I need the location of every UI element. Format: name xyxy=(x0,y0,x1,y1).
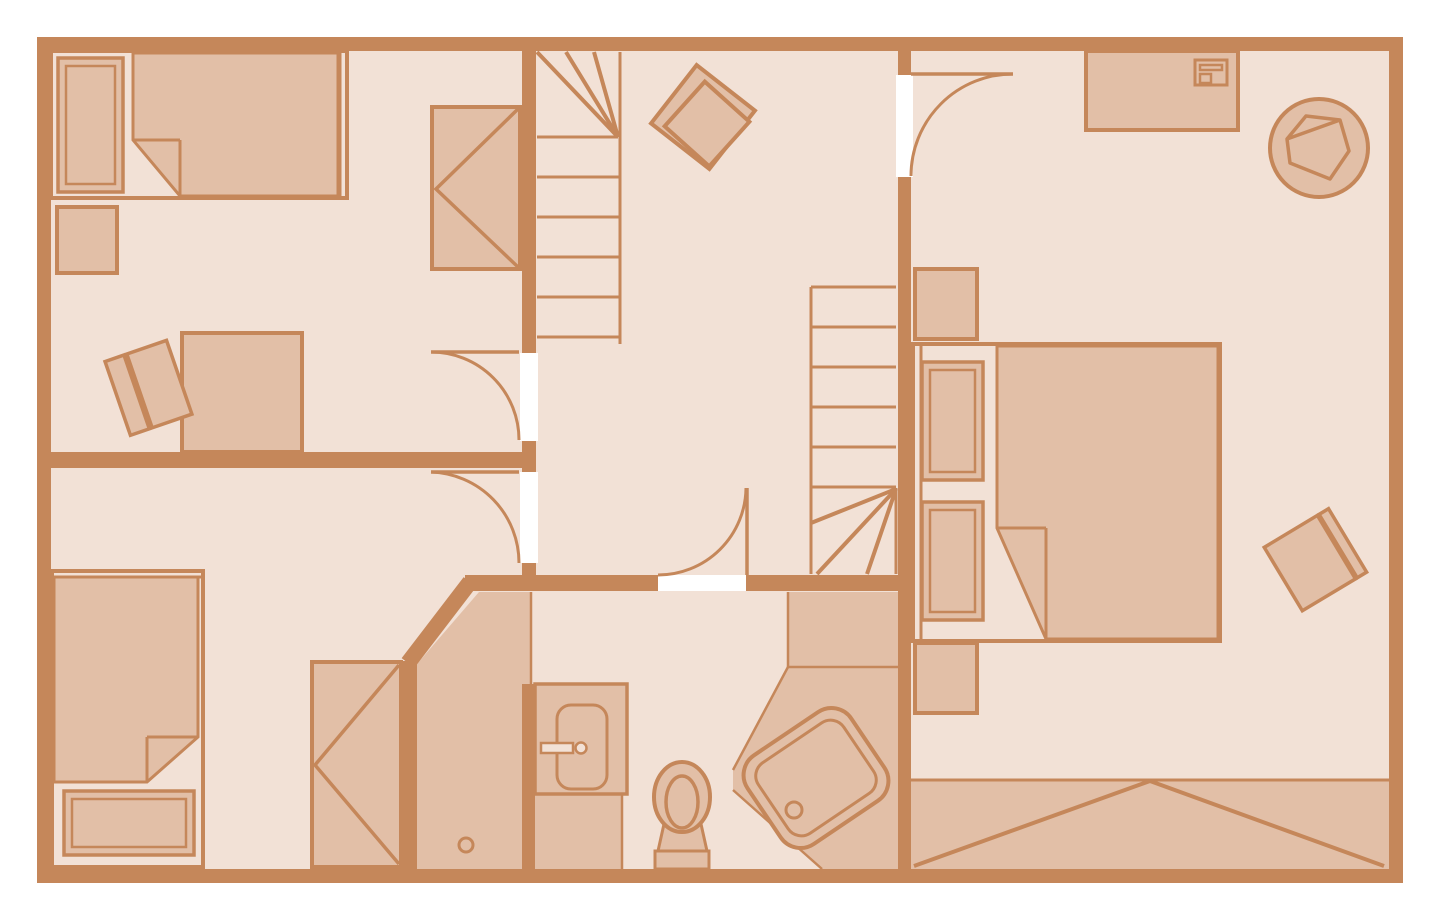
floor-plan-drawing xyxy=(0,0,1440,920)
nightstand-top-left xyxy=(57,207,117,273)
toilet-tank xyxy=(655,851,709,869)
bathroom-north-wall-right xyxy=(746,575,911,591)
desk-top-left xyxy=(182,333,302,452)
outer-wall-bottom xyxy=(37,869,1403,883)
outer-wall-right xyxy=(1389,37,1403,883)
nightstand-right-lower xyxy=(915,643,977,713)
bathroom-west-wall xyxy=(522,684,535,869)
outer-wall-left xyxy=(37,37,51,883)
door-opening-bedroom-top-left xyxy=(520,353,538,441)
round-swivel-chair xyxy=(1270,99,1368,197)
floor-plan-page xyxy=(0,0,1440,920)
toilet xyxy=(654,762,710,869)
door-opening-bedroom-right xyxy=(896,75,913,177)
faucet-knob-icon xyxy=(576,743,587,754)
pillow xyxy=(64,791,194,855)
wardrobe-bottom-left xyxy=(312,662,401,867)
wardrobe-body xyxy=(312,662,401,867)
attic-band xyxy=(911,780,1389,869)
chair-base-circle xyxy=(1270,99,1368,197)
hall-west-wall-upper xyxy=(522,51,536,353)
bathroom-north-wall-left xyxy=(465,575,658,591)
left-bedrooms-divider-wall xyxy=(51,452,536,468)
right-bedroom-west-wall-stub xyxy=(898,51,911,75)
sloped-ceiling-zone xyxy=(911,780,1389,869)
outer-wall-top xyxy=(37,37,1403,51)
wardrobe-top-left xyxy=(432,107,520,269)
pillow xyxy=(58,58,123,192)
nightstand-right-upper xyxy=(915,269,977,339)
right-bedroom-west-wall xyxy=(898,177,911,869)
wardrobe-body xyxy=(432,107,520,269)
door-opening-bedroom-bottom-left xyxy=(520,472,538,563)
faucet-icon xyxy=(541,743,573,753)
door-opening-bathroom xyxy=(658,575,746,591)
sink-vanity xyxy=(535,684,627,794)
bedroom2-east-wall xyxy=(403,661,417,869)
double-bed-right xyxy=(913,344,1220,641)
bed-top-left xyxy=(51,51,347,198)
desk-right-room xyxy=(1086,51,1238,130)
under-sink-floor xyxy=(535,794,622,869)
bed-bottom-left xyxy=(52,571,203,867)
toilet-bowl xyxy=(654,762,710,832)
